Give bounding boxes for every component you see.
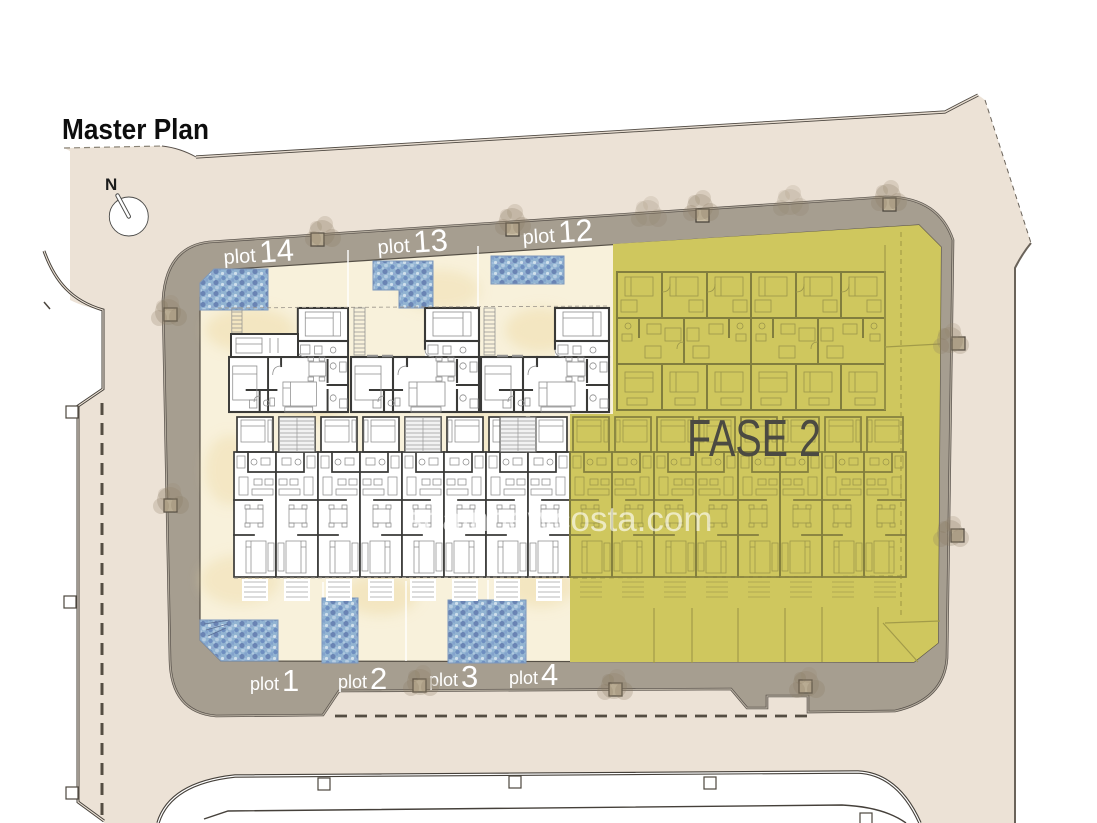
svg-text:13: 13 [412,222,449,259]
svg-text:costa.com: costa.com [553,500,713,539]
svg-text:plot: plot [338,672,367,692]
svg-text:plot: plot [223,245,257,269]
svg-text:plot: plot [250,674,279,694]
svg-text:FASE 2: FASE 2 [687,410,821,468]
svg-text:14: 14 [258,232,295,269]
svg-text:Master Plan: Master Plan [62,114,209,146]
svg-text:12: 12 [557,212,594,249]
svg-text:plot: plot [509,668,538,688]
svg-text:1: 1 [282,663,299,698]
svg-text:N: N [105,175,117,194]
svg-text:spainnew: spainnew [405,500,554,539]
svg-text:4: 4 [541,657,558,692]
svg-text:2: 2 [370,661,387,696]
svg-text:plot: plot [377,235,411,259]
svg-text:3: 3 [461,659,478,694]
